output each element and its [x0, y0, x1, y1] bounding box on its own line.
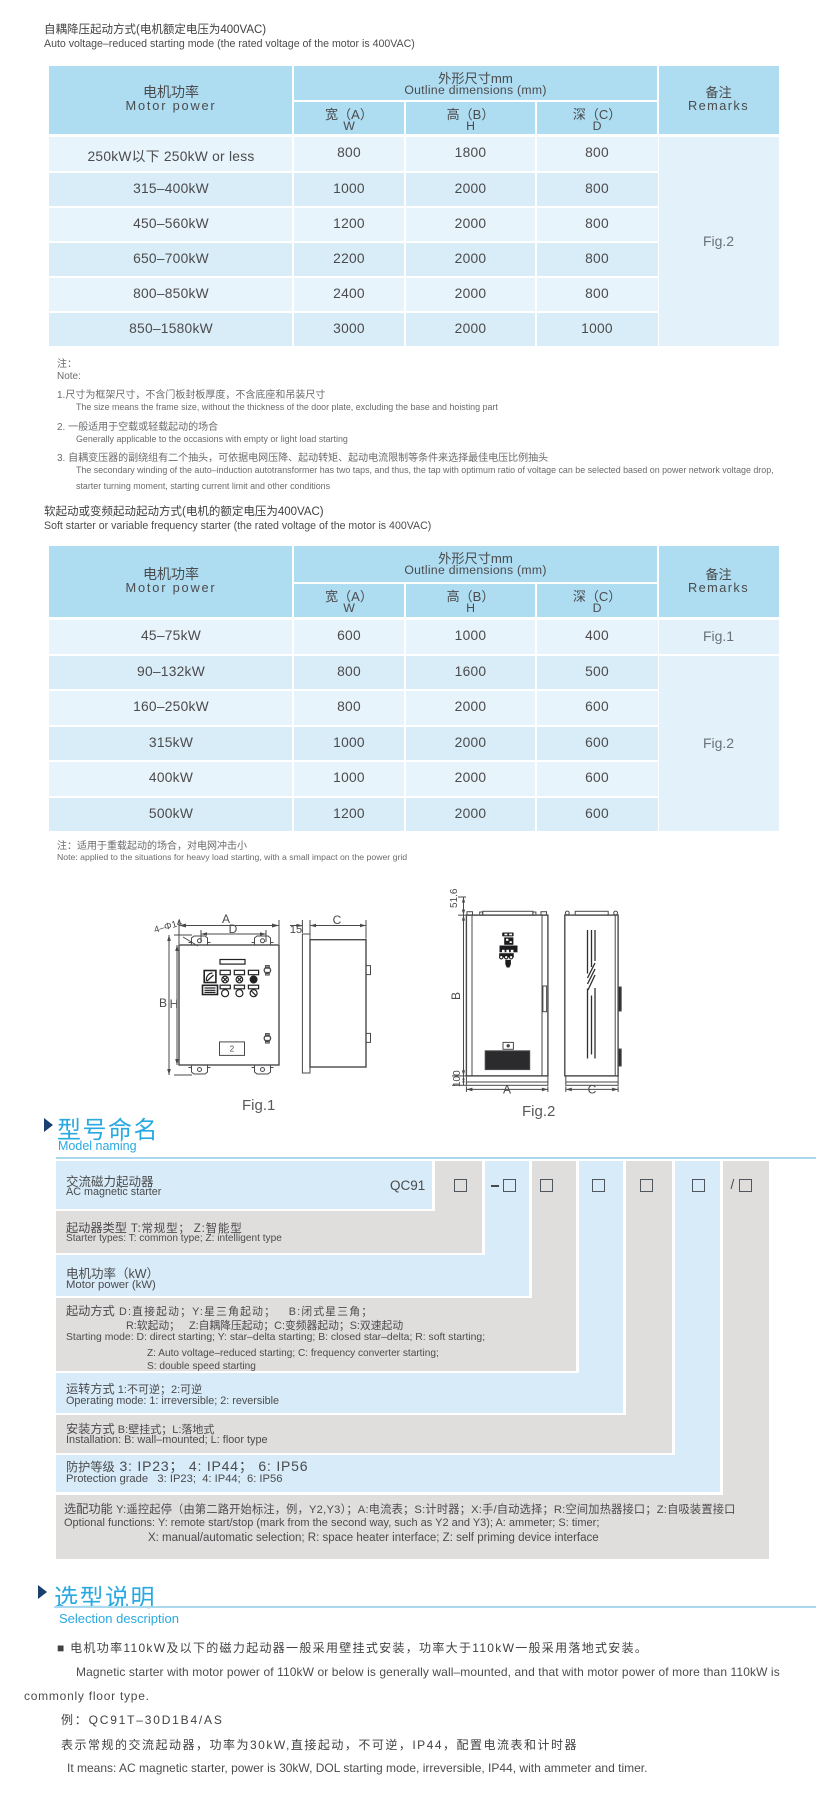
- svg-text:15: 15: [290, 924, 302, 936]
- svg-text:B: B: [159, 996, 167, 1010]
- svg-text:C: C: [333, 913, 342, 927]
- svg-text:51.6: 51.6: [449, 888, 460, 908]
- svg-text:C: C: [588, 1083, 597, 1097]
- svg-text:A: A: [503, 1083, 511, 1097]
- svg-text:B: B: [449, 992, 463, 1000]
- svg-text:H: H: [170, 997, 179, 1011]
- svg-text:D: D: [229, 922, 238, 936]
- svg-text:2: 2: [230, 1045, 235, 1054]
- svg-text:100: 100: [452, 1070, 463, 1087]
